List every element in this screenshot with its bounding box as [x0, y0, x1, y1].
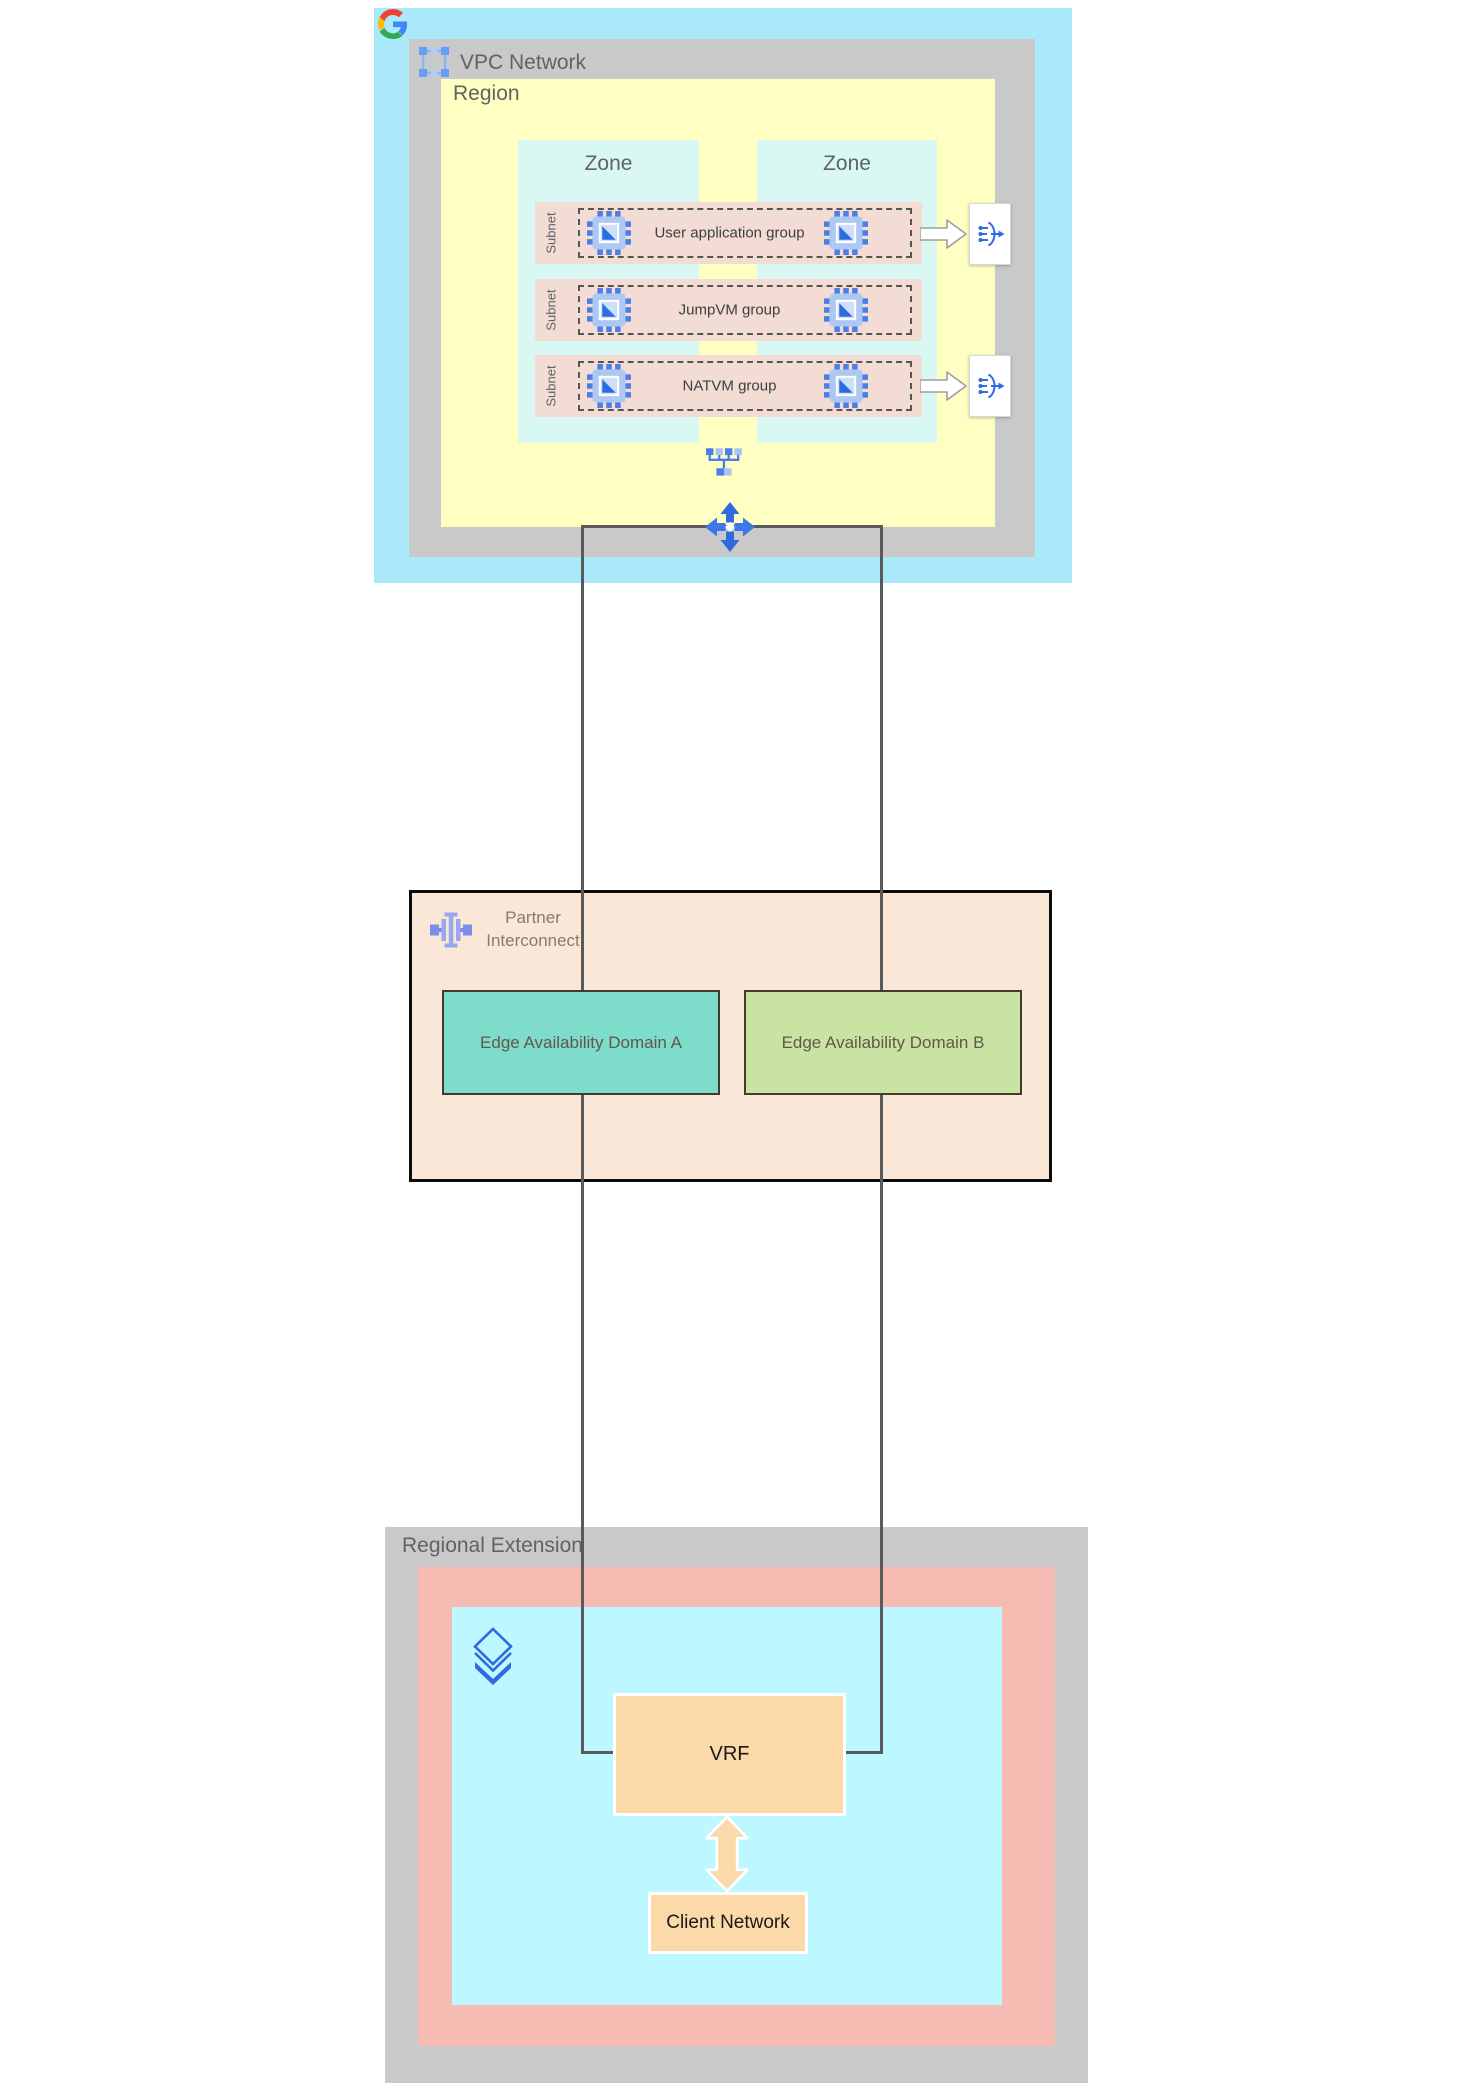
vpc-icon — [419, 47, 449, 77]
subnet-row-user-application: Subnet User application group — [535, 202, 922, 264]
regional-extension-title: Regional Extension — [402, 1534, 583, 1558]
bidirectional-arrow-icon — [701, 1814, 753, 1894]
instance-group-label: User application group — [631, 225, 828, 242]
vpc-network-title: VPC Network — [460, 51, 586, 75]
google-g-logo — [378, 9, 408, 39]
connector-stub-left — [581, 1751, 615, 1754]
vm-instance-icon — [587, 288, 631, 332]
connector-line-left — [581, 525, 584, 1754]
load-balancer-icon — [975, 219, 1005, 249]
connector-line-right — [880, 525, 883, 1754]
partner-interconnect-icon — [428, 908, 474, 952]
vm-instance-icon — [824, 364, 868, 408]
instance-group-label: NATVM group — [631, 378, 828, 395]
partner-interconnect-title-line2: Interconnect — [468, 929, 598, 952]
vm-instance-icon — [824, 211, 868, 255]
subnet-label: Subnet — [544, 203, 559, 263]
edge-availability-domain-a-label: Edge Availability Domain A — [480, 1033, 682, 1053]
subnet-label: Subnet — [544, 356, 559, 416]
client-network-label: Client Network — [666, 1912, 790, 1934]
vm-instance-icon — [587, 211, 631, 255]
zone-title: Zone — [518, 140, 699, 176]
network-switch-icon — [705, 448, 745, 478]
connector-stub-right — [844, 1751, 883, 1754]
flow-arrow-icon — [920, 368, 968, 404]
load-balancer-icon — [975, 371, 1005, 401]
architecture-diagram: VPC Network Region Zone Zone Subnet User… — [0, 0, 1459, 2083]
subnet-row-jumpvm: Subnet JumpVM group — [535, 279, 922, 341]
client-network-box: Client Network — [648, 1892, 808, 1954]
edge-availability-domain-b-label: Edge Availability Domain B — [782, 1033, 985, 1053]
vrf-box: VRF — [613, 1693, 846, 1816]
load-balancer-box — [969, 203, 1011, 265]
subnet-label: Subnet — [544, 280, 559, 340]
load-balancer-box — [969, 355, 1011, 417]
vm-instance-icon — [587, 364, 631, 408]
subnet-row-natvm: Subnet NATVM group — [535, 355, 922, 417]
partner-interconnect-title-line1: Partner — [468, 906, 598, 929]
vrf-label: VRF — [710, 1743, 750, 1766]
routes-icon — [704, 501, 756, 553]
edge-availability-domain-a: Edge Availability Domain A — [442, 990, 720, 1095]
cloud-router-icon — [464, 1626, 522, 1688]
partner-interconnect-title: Partner Interconnect — [468, 906, 598, 952]
region-title: Region — [453, 82, 520, 106]
instance-group-label: JumpVM group — [631, 302, 828, 319]
vm-instance-icon — [824, 288, 868, 332]
flow-arrow-icon — [920, 216, 968, 252]
zone-title: Zone — [757, 140, 937, 176]
edge-availability-domain-b: Edge Availability Domain B — [744, 990, 1022, 1095]
